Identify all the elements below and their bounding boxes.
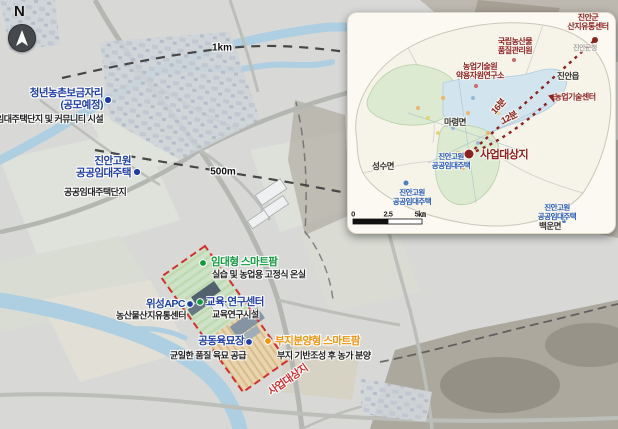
dot-rental — [200, 260, 207, 267]
dot-edu — [197, 299, 204, 306]
facility-rental-label: 임대형 스마트팜 — [211, 256, 278, 268]
inset-poi-quality-line1: 국립농산물 — [498, 37, 532, 46]
inset-scale-mid: 2.5 — [384, 210, 393, 219]
facility-parcel-label: 부지분양형 스마트팜 — [275, 335, 360, 347]
inset-map-panel: 진안군 산지유통센터 진안군청 국립농산물 품질관리원 농업기술원 약용자원연구… — [347, 12, 616, 234]
distance-label-500m: 500m — [210, 167, 236, 178]
marker-youth-line1: 청년농촌보금자리 — [30, 87, 103, 99]
dot-housing-sw — [404, 181, 409, 186]
compass-n-label: N — [14, 3, 25, 20]
facility-edu-label: 교육·연구센터 — [206, 296, 264, 308]
inset-housing-sw-line2: 공공임대주택 — [393, 197, 431, 206]
inset-district-maryeong: 마령면 — [444, 116, 466, 128]
inset-poi-quality: 국립농산물 품질관리원 — [498, 37, 532, 55]
marker-plateau-line2: 공공임대주택 — [76, 167, 131, 179]
marker-youth-title: 청년농촌보금자리 (공모예정) — [30, 87, 103, 111]
compass-icon — [8, 24, 36, 52]
dot-quality — [512, 58, 516, 62]
inset-site-label: 사업대상지 — [480, 146, 528, 162]
marker-plateau-line1: 진안고원 — [76, 155, 131, 167]
inset-poi-distribution-line1: 진안군 — [567, 13, 608, 22]
marker-youth-desc: 임대주택단지 및 커뮤니티 시설 — [0, 112, 103, 125]
inset-poi-herb-line1: 농업기술원 — [456, 62, 504, 71]
inset-poi-quality-line2: 품질관리원 — [498, 46, 532, 55]
dot-plateau — [133, 168, 140, 175]
map-screenshot: N 1km 500m 청년농촌보금자리 (공모예정) 임대주택단지 및 커뮤니티… — [0, 0, 618, 429]
inset-housing-center-line1: 진안고원 — [432, 152, 470, 161]
inset-housing-sw-line1: 진안고원 — [393, 188, 431, 197]
dot-nursery — [246, 339, 253, 346]
dot-parcel — [265, 338, 272, 345]
dot-youth — [104, 96, 111, 103]
dot-apc — [187, 301, 194, 308]
inset-housing-se-line1: 진안고원 — [538, 203, 576, 212]
distance-label-1km: 1km — [212, 43, 232, 54]
inset-scale-max: 5㎞ — [415, 209, 426, 220]
dot-herb — [474, 84, 478, 88]
facility-nursery-desc: 균일한 품질 육묘 공급 — [170, 349, 246, 362]
facility-nursery-label: 공동육묘장 — [198, 335, 244, 347]
facility-edu-desc: 교육연구시설 — [212, 308, 259, 321]
inset-poi-agtech: 농업기술센터 — [554, 93, 595, 102]
inset-housing-se: 진안고원 공공임대주택 — [538, 203, 576, 221]
inset-scale-zero: 0 — [351, 210, 355, 219]
inset-housing-center: 진안고원 공공임대주택 — [432, 152, 470, 170]
inset-district-baegun: 백운면 — [539, 220, 561, 232]
inset-poi-herb-line2: 약용자원연구소 — [456, 71, 504, 80]
marker-plateau-title: 진안고원 공공임대주택 — [76, 155, 131, 179]
inset-district-seongsu: 성수면 — [372, 160, 394, 172]
inset-basemap-label: 진안군청 — [573, 43, 597, 53]
facility-rental-desc: 실습 및 농업용 고정식 온실 — [212, 268, 306, 281]
marker-youth-line2: (공모예정) — [30, 99, 103, 111]
inset-housing-center-line2: 공공임대주택 — [432, 161, 470, 170]
facility-apc-desc: 농산물산지유통센터 — [116, 309, 186, 322]
inset-scalebar — [353, 219, 422, 224]
inset-poi-herb: 농업기술원 약용자원연구소 — [456, 62, 504, 80]
inset-poi-distribution: 진안군 산지유통센터 — [567, 13, 608, 31]
inset-district-jinan: 진안읍 — [557, 70, 579, 82]
inset-poi-distribution-line2: 산지유통센터 — [567, 22, 608, 31]
marker-plateau-desc: 공공임대주택단지 — [64, 185, 126, 198]
inset-housing-sw: 진안고원 공공임대주택 — [393, 188, 431, 206]
facility-parcel-desc: 부지 기반조성 후 농가 분양 — [277, 349, 371, 362]
